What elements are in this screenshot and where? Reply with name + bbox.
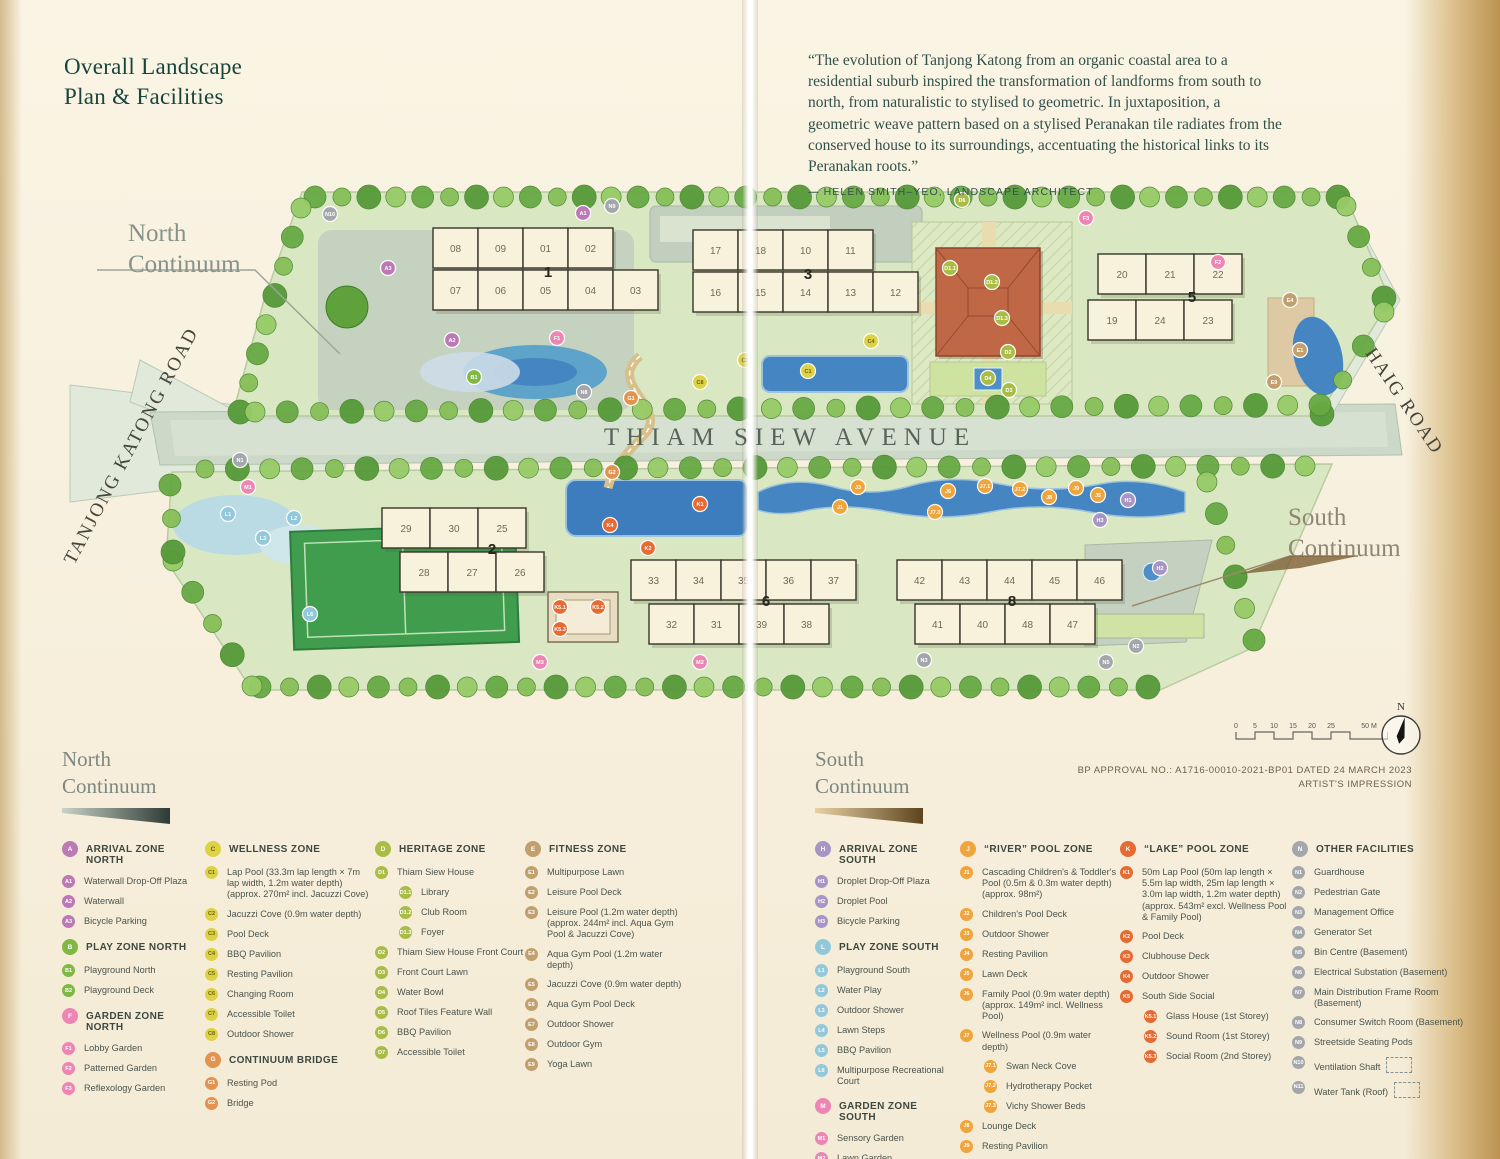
legend-label: Clubhouse Deck (1142, 950, 1209, 962)
legend-zone-A: AARRIVAL ZONE NORTH (62, 841, 202, 866)
tree (307, 675, 331, 699)
page-fold (742, 0, 758, 1159)
tree (1131, 454, 1155, 478)
legend-badge-E7: E7 (525, 1018, 538, 1031)
tree (1223, 565, 1247, 589)
page-title-line1: Overall Landscape (64, 52, 242, 82)
legend-badge-D5: D5 (375, 1006, 388, 1019)
legend-label: Outdoor Shower (547, 1018, 614, 1030)
unit-number: 33 (648, 576, 660, 587)
tree (1002, 455, 1026, 479)
north-compass: N (1378, 700, 1424, 765)
tree (972, 458, 990, 476)
legend-item-F1: F1Lobby Garden (62, 1042, 202, 1055)
legend-badge-N11: N11 (1292, 1081, 1305, 1094)
tree (890, 398, 910, 418)
legend-badge-F3: F3 (62, 1082, 75, 1095)
legend-label: Outdoor Gym (547, 1038, 602, 1050)
legend-badge-J: J (960, 841, 976, 857)
legend-label: Hydrotherapy Pocket (1006, 1080, 1092, 1092)
legend-label: Lawn Garden (837, 1152, 892, 1159)
label-thiam-siew-avenue: THIAM SIEW AVENUE (560, 424, 1020, 452)
legend-badge-H3: H3 (815, 915, 828, 928)
legend-zone-B: BPLAY ZONE NORTH (62, 939, 202, 955)
unit-number: 28 (418, 568, 430, 579)
legend-zone-N: NOTHER FACILITIES (1292, 841, 1472, 857)
legend-badge-G: G (205, 1052, 221, 1068)
tree (1205, 503, 1227, 525)
tree (841, 676, 863, 698)
legend-item-A1: A1Waterwall Drop-Off Plaza (62, 875, 202, 888)
legend-badge-N9: N9 (1292, 1036, 1305, 1049)
tree (440, 402, 458, 420)
north-header-wedge (62, 807, 172, 825)
map-badge-label: K5.1 (554, 605, 566, 611)
legend-label: BBQ Pavilion (227, 948, 281, 960)
legend-badge-A3: A3 (62, 915, 75, 928)
legend-label: Playground South (837, 964, 910, 976)
unit-number: 10 (800, 246, 812, 257)
tree (163, 510, 181, 528)
brochure-page: 0809010207060504031171810111615141312320… (0, 0, 1500, 1159)
legend-label: Family Pool (0.9m water depth) (approx. … (982, 988, 1118, 1023)
tree (503, 400, 523, 420)
unit-number: 26 (514, 568, 526, 579)
map-badge-label: G1 (627, 396, 634, 402)
legend-badge-N10: N10 (1292, 1056, 1305, 1069)
page-left-edge (0, 0, 22, 1159)
tree (204, 615, 222, 633)
map-badge-label: M2 (696, 660, 704, 666)
legend-label: Library (421, 886, 449, 898)
scale-bar: 051015202550 M (1228, 718, 1388, 753)
legend-label: Vichy Shower Beds (1006, 1100, 1086, 1112)
tree (1166, 456, 1186, 476)
map-badge-label: J8 (1046, 495, 1052, 501)
map-badge-label: N8 (580, 390, 587, 396)
tree (843, 458, 861, 476)
legend-item-L2: L2Water Play (815, 984, 957, 997)
legend-label: Waterwall Drop-Off Plaza (84, 875, 187, 887)
map-badge-label: D1.2 (986, 280, 998, 286)
map-badge-label: C4 (867, 339, 875, 345)
unit-number: 01 (540, 244, 552, 255)
legend-item-N7: N7Main Distribution Frame Room (Basement… (1292, 986, 1472, 1009)
tree (1114, 394, 1138, 418)
legend-zone-L: LPLAY ZONE SOUTH (815, 939, 957, 955)
legend-label: Playground North (84, 964, 156, 976)
tree (534, 399, 556, 421)
tree (985, 395, 1009, 419)
legend-label: Jacuzzi Cove (0.9m water depth) (547, 978, 681, 990)
tree (1309, 394, 1331, 416)
legend-item-H2: H2Droplet Pool (815, 895, 957, 908)
legend-badge-F2: F2 (62, 1062, 75, 1075)
scale-tick: 5 (1253, 723, 1257, 730)
legend-badge-E4: E4 (525, 948, 538, 961)
map-badge-label: A3 (384, 266, 391, 272)
legend-label: GARDEN ZONE NORTH (86, 1008, 202, 1033)
tree (399, 678, 417, 696)
tree (922, 397, 944, 419)
tree (1149, 396, 1169, 416)
map-badge-label: J7.2 (1015, 487, 1026, 493)
tree (931, 677, 951, 697)
legend-badge-E6: E6 (525, 998, 538, 1011)
map-badge-label: N1 (236, 458, 243, 464)
legend-label: Leisure Pool Deck (547, 886, 622, 898)
legend-label: Swan Neck Cove (1006, 1060, 1076, 1072)
tree (761, 399, 781, 419)
tree (680, 185, 704, 209)
page-title: Overall Landscape Plan & Facilities (64, 52, 242, 113)
tree (484, 456, 508, 480)
callout-north-line1: North (128, 218, 241, 249)
legend-badge-L4: L4 (815, 1024, 828, 1037)
map-badge-label: J7.1 (980, 484, 991, 490)
map-badge-label: A2 (448, 338, 455, 344)
tree (469, 399, 493, 423)
legend-badge-K5.2: K5.2 (1144, 1030, 1157, 1043)
bp-approval-text: BP APPROVAL NO.: A1716-00010-2021-BP01 D… (1078, 764, 1412, 778)
tree (457, 677, 477, 697)
legend-badge-B: B (62, 939, 78, 955)
map-badge-label: J9 (1073, 486, 1079, 492)
tree (598, 398, 622, 422)
tree (809, 456, 831, 478)
legend-badge-D3: D3 (375, 966, 388, 979)
unit-number: 07 (450, 286, 462, 297)
map-badge-label: N3 (920, 658, 927, 664)
legend-label: Management Office (1314, 906, 1394, 918)
legend-item-J1: J1Cascading Children's & Toddler's Pool … (960, 866, 1118, 901)
legend-badge-N5: N5 (1292, 946, 1305, 959)
tree (275, 257, 293, 275)
legend-label: Accessible Toilet (227, 1008, 295, 1020)
unit-number: 44 (1004, 576, 1016, 587)
tree (604, 676, 626, 698)
map-badge-label: L3 (260, 536, 266, 542)
legend-label: Leisure Pool (1.2m water depth) (approx.… (547, 906, 687, 941)
legend-item-J7: J7Wellness Pool (0.9m water depth) (960, 1029, 1118, 1052)
legend-badge-J2: J2 (960, 908, 973, 921)
tree (873, 678, 891, 696)
tree (714, 459, 732, 477)
legend-item-C8: C8Outdoor Shower (205, 1028, 373, 1041)
legend-label: Changing Room (227, 988, 293, 1000)
legend-label: Lobby Garden (84, 1042, 142, 1054)
map-badge-label: D2 (1004, 350, 1011, 356)
legend-label: Resting Pavilion (227, 968, 293, 980)
tree (367, 676, 389, 698)
tree (627, 186, 649, 208)
legend-item-N5: N5Bin Centre (Basement) (1292, 946, 1472, 959)
legend-item-C4: C4BBQ Pavilion (205, 948, 373, 961)
legend-badge-J6: J6 (960, 988, 973, 1001)
tree (1302, 188, 1320, 206)
unit-number: 37 (828, 576, 840, 587)
tree (386, 187, 406, 207)
legend-label: Waterwall (84, 895, 124, 907)
legend-column-3: DHERITAGE ZONED1Thiam Siew HouseD1.1Libr… (375, 830, 527, 1066)
legend-item-N9: N9Streetside Seating Pods (1292, 1036, 1472, 1049)
legend-label: Water Tank (Roof) (1314, 1081, 1420, 1098)
tree (519, 186, 541, 208)
legend-badge-E2: E2 (525, 886, 538, 899)
legend-label: Bicycle Parking (837, 915, 900, 927)
tree (325, 460, 343, 478)
legend-column-8: NOTHER FACILITIESN1GuardhouseN2Pedestria… (1292, 830, 1472, 1105)
legend-zone-C: CWELLNESS ZONE (205, 841, 373, 857)
page-title-line2: Plan & Facilities (64, 82, 242, 112)
unit-number: 47 (1067, 620, 1079, 631)
legend-item-K5: K5South Side Social (1120, 990, 1288, 1003)
tree (161, 540, 185, 564)
legend-item-E3: E3Leisure Pool (1.2m water depth) (appro… (525, 906, 687, 941)
legend-badge-L2: L2 (815, 984, 828, 997)
tree (777, 457, 797, 477)
legend-label: Jacuzzi Cove (0.9m water depth) (227, 908, 361, 920)
dashed-box-icon (1394, 1082, 1420, 1098)
legend-item-J6: J6Family Pool (0.9m water depth) (approx… (960, 988, 1118, 1023)
tree (899, 675, 923, 699)
legend-column-4: EFITNESS ZONEE1Multipurpose LawnE2Leisur… (525, 830, 687, 1078)
legend-badge-L5: L5 (815, 1044, 828, 1057)
legend-item-J7.1: J7.1Swan Neck Cove (984, 1060, 1118, 1073)
legend-badge-D4: D4 (375, 986, 388, 999)
map-badge-label: N10 (325, 212, 335, 218)
legend-label: BBQ Pavilion (397, 1026, 451, 1038)
tree (1278, 395, 1298, 415)
tree (648, 458, 668, 478)
legend-item-N2: N2Pedestrian Gate (1292, 886, 1472, 899)
legend-label: Lawn Steps (837, 1024, 885, 1036)
legend-zone-E: EFITNESS ZONE (525, 841, 687, 857)
legend-label: Generator Set (1314, 926, 1372, 938)
legend-badge-D: D (375, 841, 391, 857)
legend-badge-J7.1: J7.1 (984, 1060, 997, 1073)
legend-badge-N: N (1292, 841, 1308, 857)
legend-label: Yoga Lawn (547, 1058, 592, 1070)
unit-number: 45 (1049, 576, 1061, 587)
legend-label: Electrical Substation (Basement) (1314, 966, 1447, 978)
legend-item-L3: L3Outdoor Shower (815, 1004, 957, 1017)
legend-badge-J8: J8 (960, 1120, 973, 1133)
legend-item-K5.3: K5.3Social Room (2nd Storey) (1144, 1050, 1288, 1063)
legend-item-N10: N10Ventilation Shaft (1292, 1056, 1472, 1073)
legend-badge-J9: J9 (960, 1140, 973, 1153)
legend-badge-L: L (815, 939, 831, 955)
legend-item-N6: N6Electrical Substation (Basement) (1292, 966, 1472, 979)
legend-label: ARRIVAL ZONE SOUTH (839, 841, 957, 866)
tree (956, 398, 974, 416)
legend-label: BBQ Pavilion (837, 1044, 891, 1056)
tree (245, 402, 265, 422)
legend-badge-J4: J4 (960, 948, 973, 961)
map-badge-label: K5.2 (592, 605, 604, 611)
scale-tick: 0 (1234, 723, 1238, 730)
unit-number: 22 (1212, 270, 1224, 281)
legend-column-2: CWELLNESS ZONEC1Lap Pool (33.3m lap leng… (205, 830, 373, 1117)
unit-number: 13 (845, 288, 857, 299)
unit-number: 42 (914, 576, 926, 587)
tree (281, 226, 303, 248)
artists-impression-text: ARTIST'S IMPRESSION (1078, 778, 1412, 792)
legend-item-L1: L1Playground South (815, 964, 957, 977)
tree (1020, 397, 1040, 417)
legend-item-N4: N4Generator Set (1292, 926, 1472, 939)
legend-item-J5: J5Lawn Deck (960, 968, 1118, 981)
architect-quote: “The evolution of Tanjong Katong from an… (808, 50, 1286, 200)
legend-label: Front Court Lawn (397, 966, 468, 978)
unit-number: 30 (448, 524, 460, 535)
unit-number: 03 (630, 286, 642, 297)
legend-label: Pool Deck (1142, 930, 1184, 942)
legend-label: Water Bowl (397, 986, 444, 998)
block-number-5: 5 (1188, 289, 1196, 306)
legend-badge-G2: G2 (205, 1097, 218, 1110)
legend-item-D1.3: D1.3Foyer (399, 926, 527, 939)
legend-item-C1: C1Lap Pool (33.3m lap length × 7m lap wi… (205, 866, 373, 901)
tree (486, 676, 508, 698)
legend-label: Water Play (837, 984, 882, 996)
scale-tick: 10 (1270, 723, 1278, 730)
unit-number: 27 (466, 568, 478, 579)
legend-badge-F1: F1 (62, 1042, 75, 1055)
tree (333, 188, 351, 206)
scale-tick: 25 (1327, 723, 1335, 730)
quote-attribution: — HELEN SMITH–YEO, LANDSCAPE ARCHITECT (808, 185, 1286, 199)
tree (465, 185, 489, 209)
legend-item-L4: L4Lawn Steps (815, 1024, 957, 1037)
tree (1214, 397, 1232, 415)
legend-item-D7: D7Accessible Toilet (375, 1046, 527, 1059)
legend-label: Resting Pod (227, 1077, 277, 1089)
legend-label: Droplet Pool (837, 895, 888, 907)
tree (1109, 678, 1127, 696)
tree (569, 401, 587, 419)
legend-label: FITNESS ZONE (549, 841, 627, 855)
legend-item-J4: J4Resting Pavilion (960, 948, 1118, 961)
tree (240, 374, 258, 392)
legend-label: Aqua Gym Pool Deck (547, 998, 635, 1010)
legend-badge-C6: C6 (205, 988, 218, 1001)
tree (1049, 677, 1069, 697)
map-badge-label: L2 (291, 516, 297, 522)
map-badge-label: C8 (696, 380, 703, 386)
tree (182, 581, 204, 603)
tree (242, 676, 262, 696)
legend-item-C6: C6Changing Room (205, 988, 373, 1001)
legend-item-J9: J9Resting Pavilion (960, 1140, 1118, 1153)
legend-label: ARRIVAL ZONE NORTH (86, 841, 202, 866)
compass-n-label: N (1397, 701, 1405, 713)
tree (1180, 395, 1202, 417)
unit-number: 05 (540, 286, 552, 297)
tree (1217, 536, 1235, 554)
tree (517, 678, 535, 696)
tree (291, 458, 313, 480)
map-badge-label: D4 (984, 376, 992, 382)
tree (220, 643, 244, 667)
tree (1295, 456, 1315, 476)
legend-item-A3: A3Bicycle Parking (62, 915, 202, 928)
map-badge-label: E4 (1287, 298, 1295, 304)
legend-item-D3: D3Front Court Lawn (375, 966, 527, 979)
legend-badge-K: K (1120, 841, 1136, 857)
legend-badge-D1.1: D1.1 (399, 886, 412, 899)
tree (339, 677, 359, 697)
legend-column-1: AARRIVAL ZONE NORTHA1Waterwall Drop-Off … (62, 830, 202, 1102)
legend-badge-H2: H2 (815, 895, 828, 908)
tree (827, 399, 845, 417)
legend-zone-G: GCONTINUUM BRIDGE (205, 1052, 373, 1068)
legend-label: Aqua Gym Pool (1.2m water depth) (547, 948, 687, 971)
legend-badge-K1: K1 (1120, 866, 1133, 879)
map-badge-label: M1 (244, 485, 252, 491)
legend-north-header: North Continuum (62, 746, 172, 825)
map-badge-label: J6 (945, 489, 951, 495)
tree (340, 399, 364, 423)
tree (246, 343, 268, 365)
unit-number: 08 (450, 244, 462, 255)
map-badge-label: L6 (307, 612, 313, 618)
unit-number: 17 (710, 246, 722, 257)
legend-column-6: J“RIVER” POOL ZONEJ1Cascading Children's… (960, 830, 1118, 1159)
tree (260, 459, 280, 479)
legend-badge-N4: N4 (1292, 926, 1305, 939)
tree (856, 396, 880, 420)
map-badge-label: H1 (1124, 498, 1131, 504)
legend-badge-C3: C3 (205, 928, 218, 941)
legend-item-J7.3: J7.3Vichy Shower Beds (984, 1100, 1118, 1113)
legend-label: Multipurpose Lawn (547, 866, 624, 878)
south-header-wedge (815, 807, 925, 825)
legend-badge-E1: E1 (525, 866, 538, 879)
legend-label: Foyer (421, 926, 445, 938)
legend-badge-L1: L1 (815, 964, 828, 977)
legend-zone-D: DHERITAGE ZONE (375, 841, 527, 857)
tree (1051, 396, 1073, 418)
legend-item-D6: D6BBQ Pavilion (375, 1026, 527, 1039)
tree (389, 458, 409, 478)
legend-badge-N7: N7 (1292, 986, 1305, 999)
legend-zone-K: K“LAKE” POOL ZONE (1120, 841, 1288, 857)
tree (544, 675, 568, 699)
legend-item-N1: N1Guardhouse (1292, 866, 1472, 879)
legend-label: Pool Deck (227, 928, 269, 940)
map-badge-label: J7.3 (930, 510, 941, 516)
legend-label: Accessible Toilet (397, 1046, 465, 1058)
legend-badge-J7.3: J7.3 (984, 1100, 997, 1113)
tree (664, 398, 686, 420)
tree (1362, 258, 1380, 276)
legend-south-header-line1: South (815, 746, 925, 773)
legend-label: Glass House (1st Storey) (1166, 1010, 1269, 1022)
tree (291, 198, 311, 218)
legend-badge-B2: B2 (62, 984, 75, 997)
legend-zone-M: MGARDEN ZONE SOUTH (815, 1098, 957, 1123)
legend-item-H1: H1Droplet Drop-Off Plaza (815, 875, 957, 888)
map-badge-label: N9 (608, 204, 615, 210)
legend-item-E7: E7Outdoor Shower (525, 1018, 687, 1031)
map-badge-label: M3 (536, 660, 544, 666)
legend-item-B2: B2Playground Deck (62, 984, 202, 997)
tree (355, 457, 379, 481)
legend-label: Cascading Children's & Toddler's Pool (0… (982, 866, 1118, 901)
callout-north-line2: Continuum (128, 249, 241, 280)
legend-badge-N8: N8 (1292, 1016, 1305, 1029)
